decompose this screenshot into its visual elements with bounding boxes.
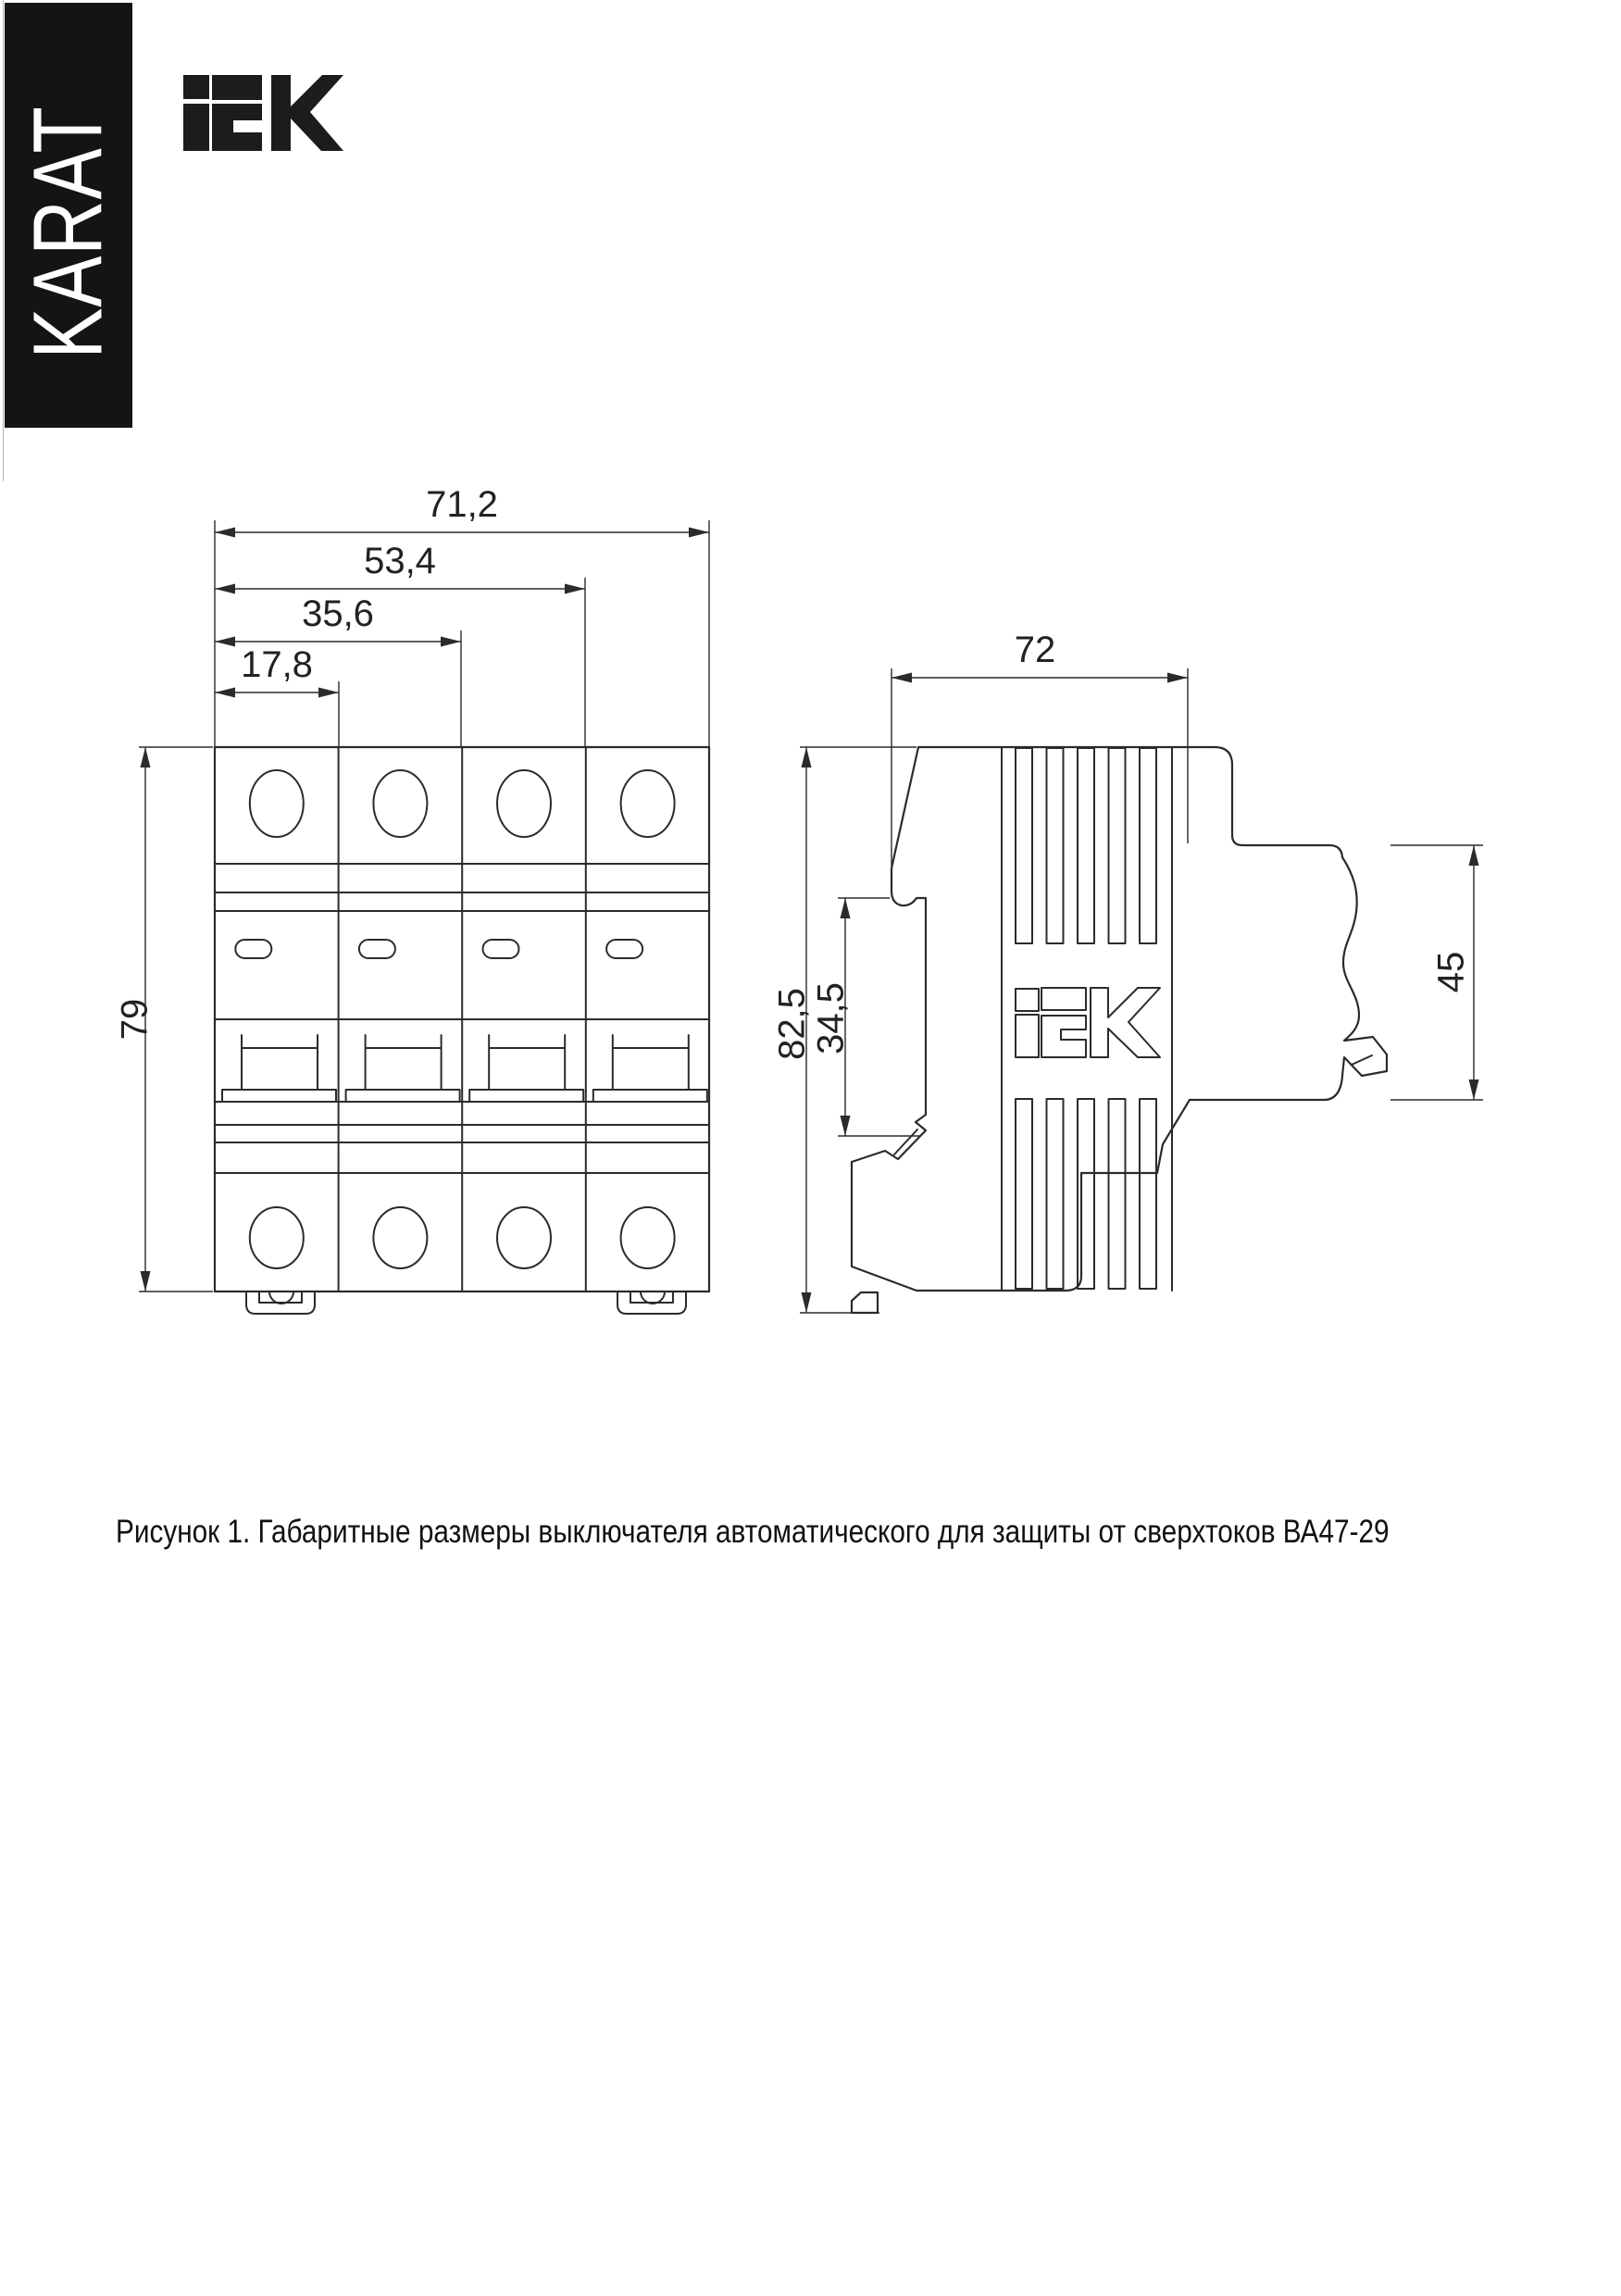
terminal-flag-line [1352, 1055, 1372, 1065]
toggle-handle [469, 1035, 583, 1102]
vent-rib [1078, 748, 1094, 943]
terminal-screw [497, 1207, 551, 1268]
vent-rib [1140, 1099, 1156, 1289]
dim-label-terminal: 45 [1431, 952, 1473, 993]
side-view [852, 747, 1387, 1313]
front-view [215, 747, 709, 1314]
iek-side-logo-i-stem [1016, 1015, 1039, 1057]
dimension-arrows [141, 528, 1479, 1314]
din-clip-inner [630, 1291, 673, 1303]
dim-label-front-total: 71,2 [426, 484, 498, 526]
terminal-screw [497, 770, 551, 837]
toggle-handle [346, 1035, 460, 1102]
iek-side-logo [1016, 988, 1160, 1057]
vent-rib [1109, 1099, 1126, 1289]
vent-rib [1016, 748, 1032, 943]
dim-label-front-height: 79 [115, 999, 156, 1041]
vent-rib [1078, 1099, 1094, 1289]
din-clip-tab [852, 1292, 878, 1313]
din-clip-inner [259, 1291, 302, 1303]
toggle-handles [222, 1035, 707, 1102]
vent-rib [1140, 748, 1156, 943]
vent-rib [1109, 748, 1126, 943]
dim-label-din-seat: 34,5 [811, 982, 853, 1054]
toggle-handle [222, 1035, 336, 1102]
iek-side-logo-e-bar [1041, 988, 1086, 1010]
vent-rib [1047, 748, 1064, 943]
iek-side-logo-e-body [1041, 1016, 1086, 1057]
terminal-screw [373, 770, 427, 837]
side-body-outline [852, 747, 1387, 1291]
iek-side-logo-i-dot [1016, 989, 1039, 1011]
page: KARAT iEK [0, 0, 1621, 2296]
vent-rib [1047, 1099, 1064, 1289]
vent-ribs-lower [1016, 1099, 1156, 1289]
toggle-handle [593, 1035, 707, 1102]
figure-caption: Рисунок 1. Габаритные размеры выключател… [116, 1514, 1390, 1551]
marking-window [606, 940, 642, 958]
dim-label-side-height: 82,5 [772, 988, 814, 1060]
marking-window [359, 940, 395, 958]
dim-label-front-one: 17,8 [241, 644, 313, 686]
dim-label-front-three: 53,4 [364, 541, 436, 582]
terminal-screw [621, 770, 675, 837]
iek-side-logo-k [1091, 988, 1160, 1057]
terminal-screw [621, 1207, 675, 1268]
din-clips-front [246, 1291, 686, 1314]
vent-rib [1016, 1099, 1032, 1289]
dim-label-side-depth: 72 [1015, 630, 1056, 671]
dimension-lines [139, 520, 1483, 1313]
terminal-screw [373, 1207, 427, 1268]
marking-window [483, 940, 519, 958]
terminal-screw [250, 1207, 304, 1268]
dim-label-front-two: 35,6 [302, 593, 374, 635]
dimension-drawing-canvas [0, 0, 1621, 2296]
vent-ribs-upper [1016, 748, 1156, 943]
terminal-screw [250, 770, 304, 837]
marking-window [235, 940, 271, 958]
